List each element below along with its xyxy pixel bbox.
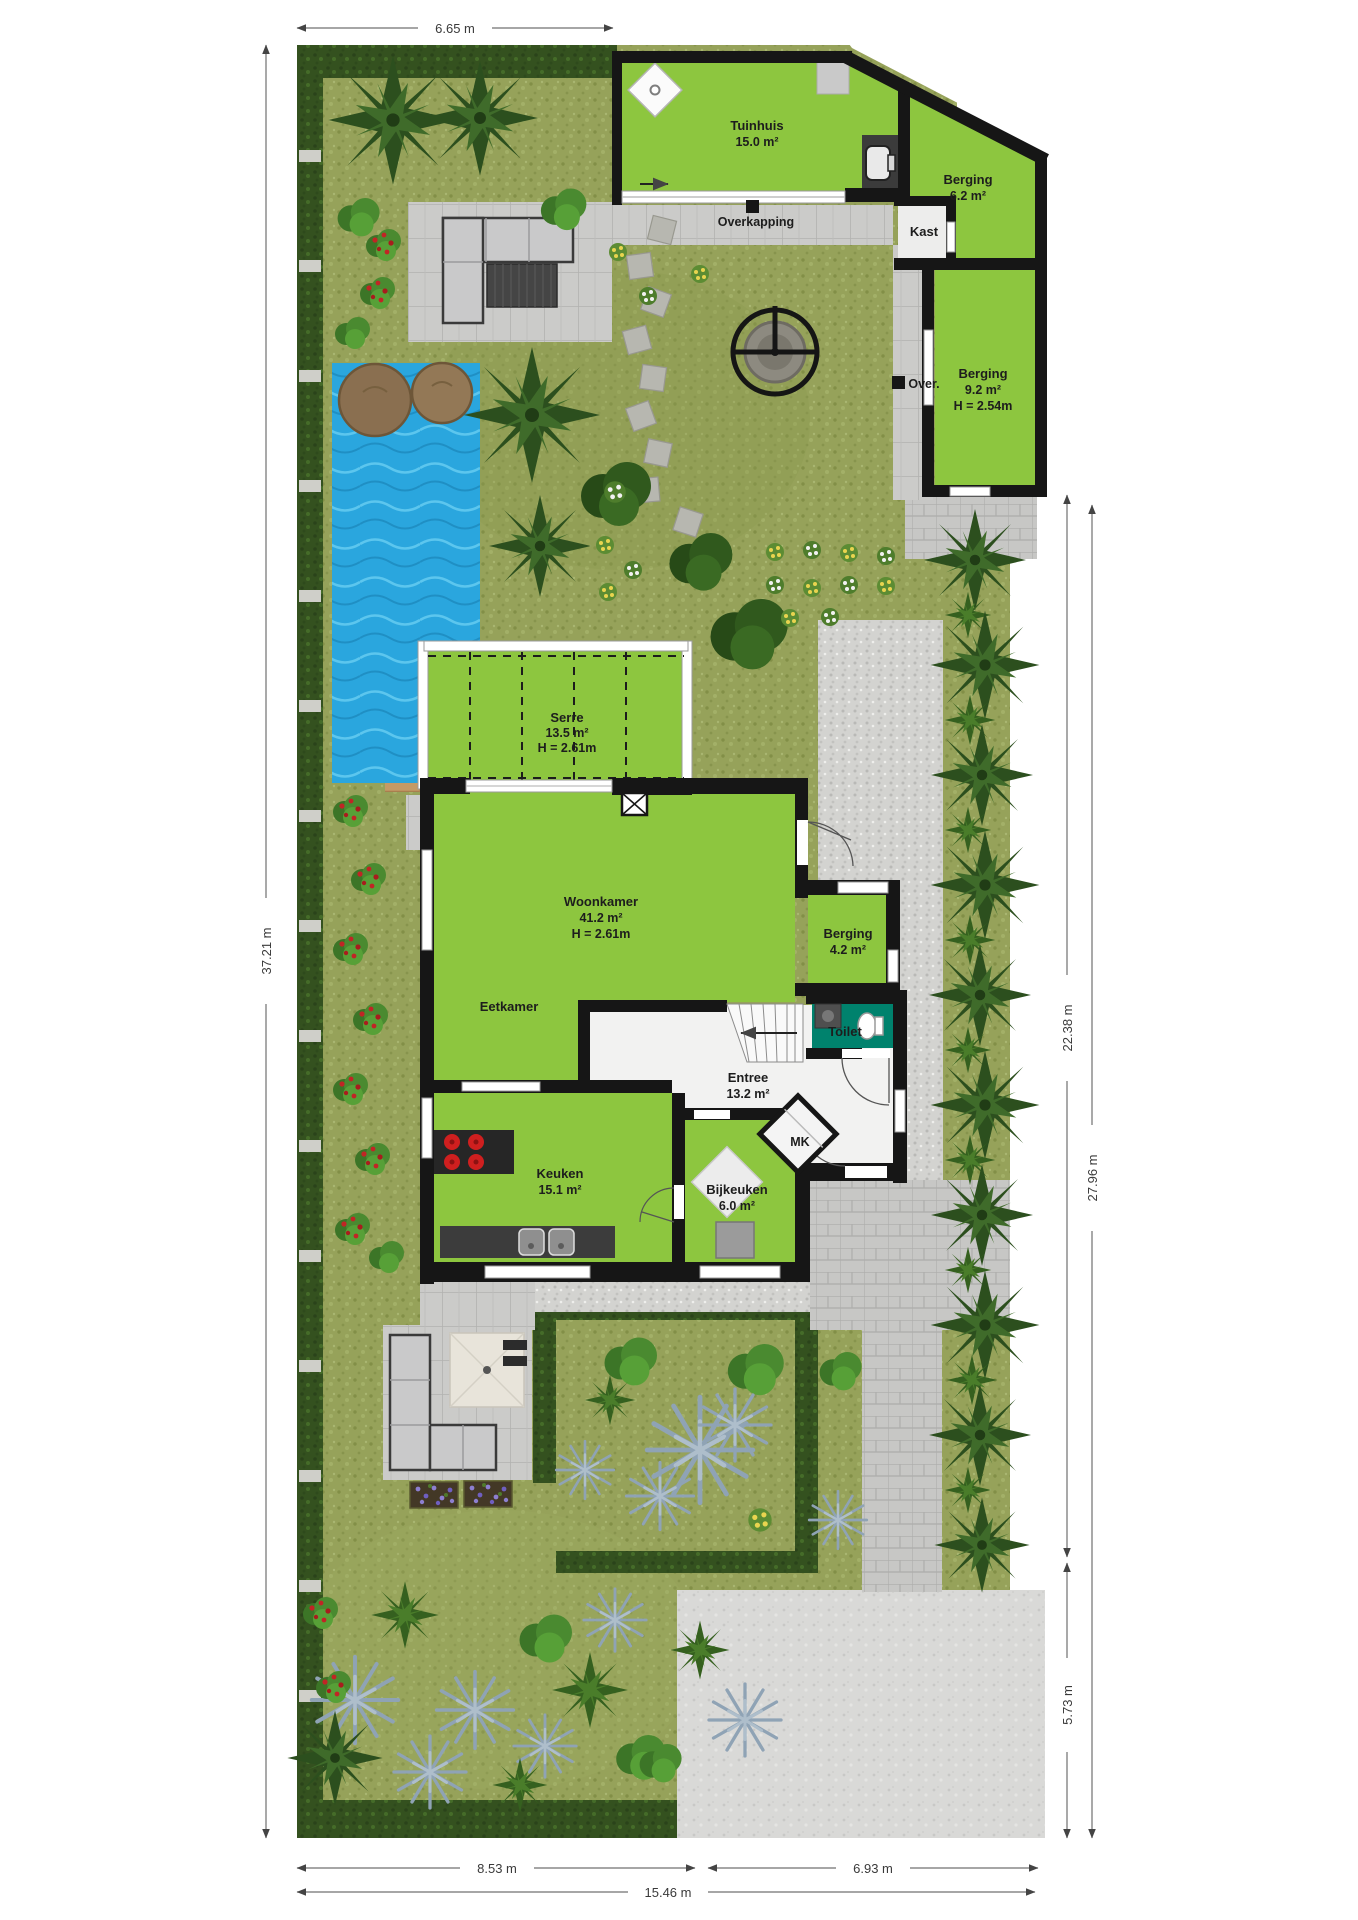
label-tuinhuis-area: 15.0 m²	[735, 135, 778, 149]
label-toilet: Toilet	[828, 1024, 862, 1039]
window-x-box	[622, 793, 647, 815]
firepit	[733, 306, 817, 394]
site-plan-page: 6.65 m 37.21 m 22.38 m 5.73 m 27.96 m 8.…	[0, 0, 1358, 1920]
label-serre-height: H = 2.61m	[538, 741, 597, 755]
overkapping-post-1	[746, 200, 759, 213]
hedge-bottom	[297, 1800, 680, 1838]
label-woonkamer-height: H = 2.61m	[572, 927, 631, 941]
sofa-bottom-left	[390, 1335, 430, 1470]
label-eetkamer: Eetkamer	[480, 999, 539, 1014]
label-berging-huis-area: 4.2 m²	[830, 943, 866, 957]
label-overkapping: Overkapping	[718, 215, 794, 229]
hedge-top	[297, 45, 617, 78]
label-berging-achter-height: H = 2.54m	[954, 399, 1013, 413]
label-kast: Kast	[910, 224, 939, 239]
sofa-left	[443, 218, 483, 323]
pool-boulder-2	[412, 363, 472, 423]
tiles-connection	[420, 1282, 535, 1330]
label-berging-achter: Berging	[958, 366, 1007, 381]
label-woonkamer-area: 41.2 m²	[579, 911, 622, 925]
label-keuken: Keuken	[537, 1166, 584, 1181]
berging-achter-window	[950, 487, 990, 496]
dim-right-full-label: 27.96 m	[1085, 1155, 1100, 1202]
lounge-set	[443, 218, 573, 323]
bijkeuken-appliance	[716, 1222, 754, 1258]
label-serre: Serre	[550, 710, 583, 725]
lounge-table	[487, 264, 557, 307]
kast-door	[947, 222, 955, 252]
kitchen-counter-sink	[440, 1226, 615, 1258]
tuinhuis-toilet-icon	[866, 146, 895, 180]
label-bijkeuken: Bijkeuken	[706, 1182, 767, 1197]
hedge-inner-left	[533, 1298, 556, 1483]
label-berging-tuin: Berging	[943, 172, 992, 187]
pool-boulder-1	[339, 364, 411, 436]
label-berging-tuin-area: 6.2 m²	[950, 189, 986, 203]
label-over: Over.	[908, 377, 939, 391]
dim-bottom-right-label: 6.93 m	[853, 1861, 893, 1876]
hedge-inner-right	[795, 1298, 818, 1573]
dim-top-label: 6.65 m	[435, 21, 475, 36]
hedge-inner-bottom	[556, 1551, 818, 1573]
tuinhuis-cabinet	[817, 62, 849, 94]
paved-walk-narrow	[862, 1330, 942, 1592]
label-tuinhuis: Tuinhuis	[730, 118, 783, 133]
dim-right-upper-label: 22.38 m	[1060, 1005, 1075, 1052]
label-berging-huis: Berging	[823, 926, 872, 941]
cooktop	[434, 1130, 514, 1174]
dim-bottom-total-label: 15.46 m	[645, 1885, 692, 1900]
label-entree-area: 13.2 m²	[726, 1087, 769, 1101]
dim-right-lower-label: 5.73 m	[1060, 1685, 1075, 1725]
dim-bottom-left-label: 8.53 m	[477, 1861, 517, 1876]
overkapping-post-2	[892, 376, 905, 389]
label-serre-area: 13.5 m²	[545, 726, 588, 740]
site-plan: 6.65 m 37.21 m 22.38 m 5.73 m 27.96 m 8.…	[0, 0, 1358, 1920]
berging-achter-door	[924, 330, 933, 405]
label-bijkeuken-area: 6.0 m²	[719, 1199, 755, 1213]
label-entree: Entree	[728, 1070, 768, 1085]
hedge-left	[297, 45, 323, 1838]
dim-left-label: 37.21 m	[259, 928, 274, 975]
label-woonkamer: Woonkamer	[564, 894, 638, 909]
label-berging-achter-area: 9.2 m²	[965, 383, 1001, 397]
label-mk: MK	[790, 1135, 809, 1149]
label-keuken-area: 15.1 m²	[538, 1183, 581, 1197]
